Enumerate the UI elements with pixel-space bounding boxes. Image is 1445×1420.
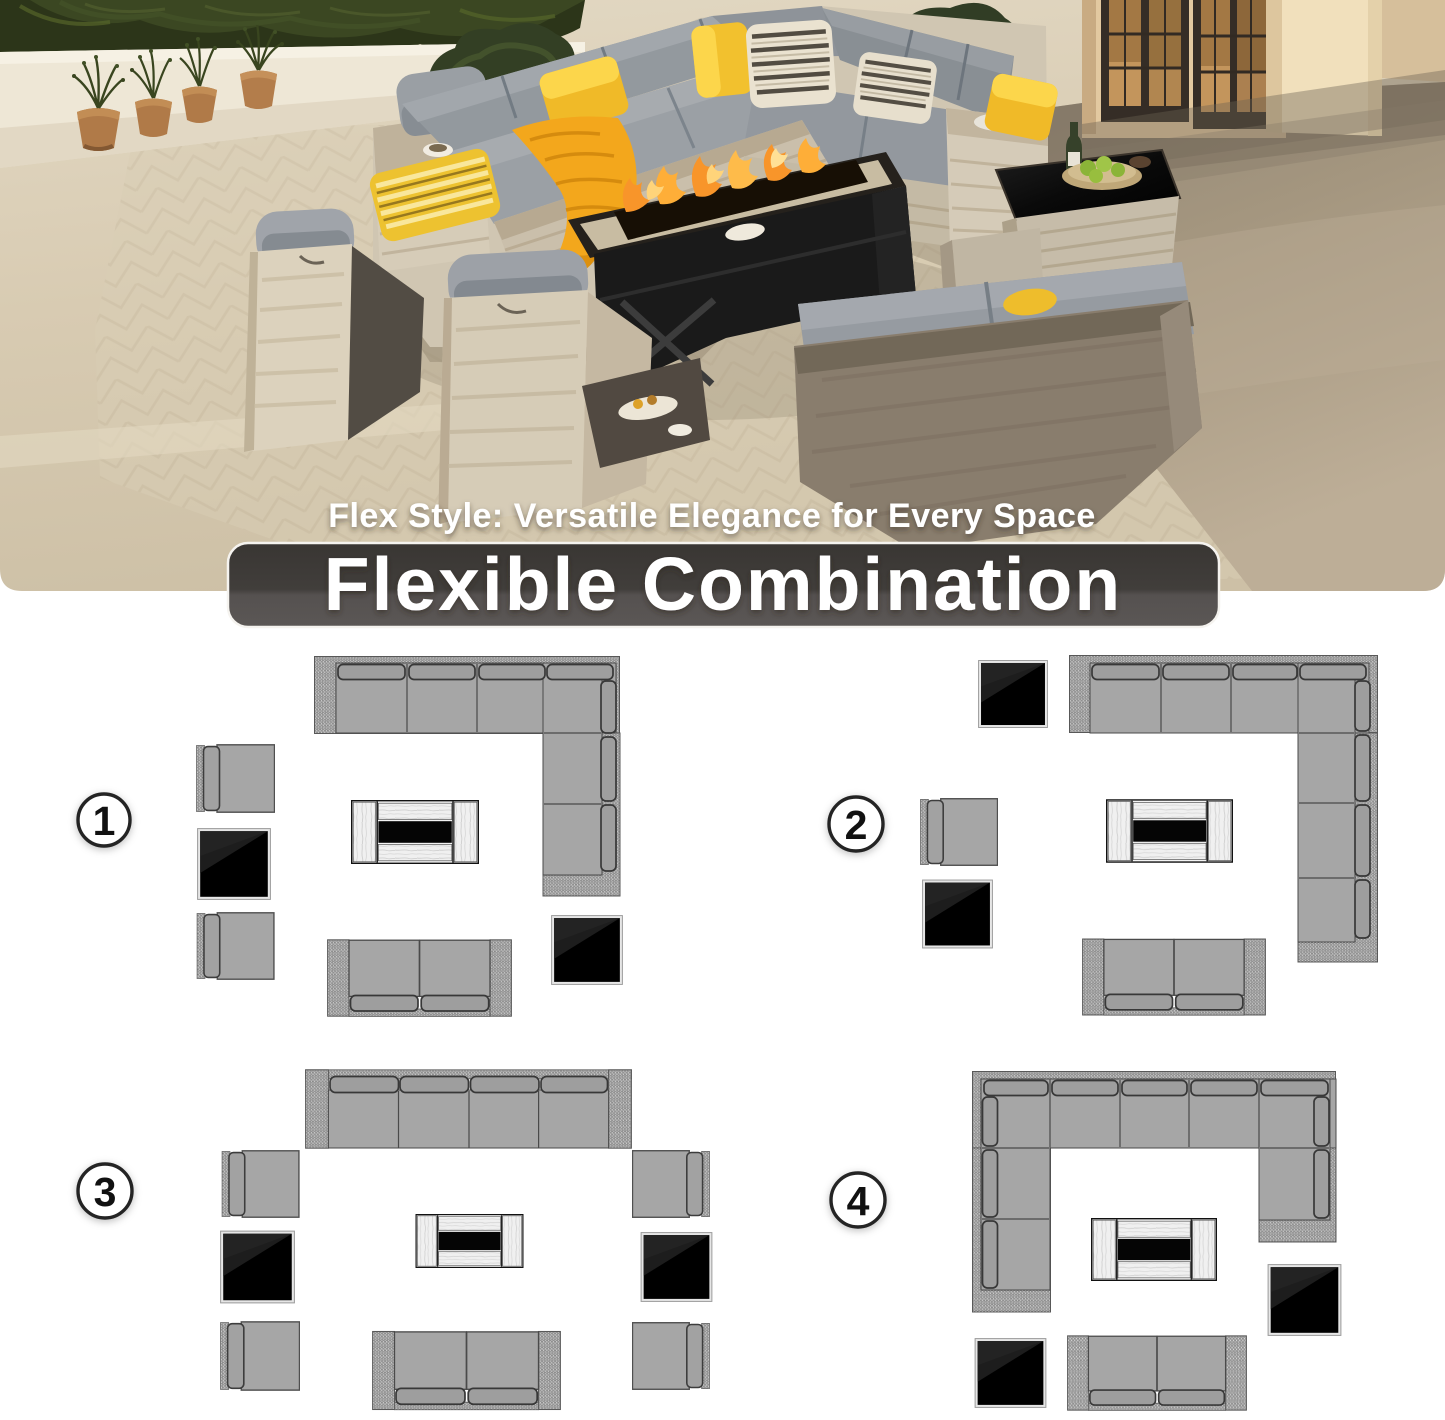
svg-text:3: 3 (94, 1169, 117, 1215)
svg-text:1: 1 (93, 798, 116, 844)
svg-text:Flex Style: Versatile Elegance: Flex Style: Versatile Elegance for Every… (328, 497, 1096, 535)
svg-text:Flexible Combination: Flexible Combination (324, 542, 1122, 626)
svg-text:4: 4 (847, 1178, 870, 1224)
svg-text:2: 2 (845, 802, 868, 848)
